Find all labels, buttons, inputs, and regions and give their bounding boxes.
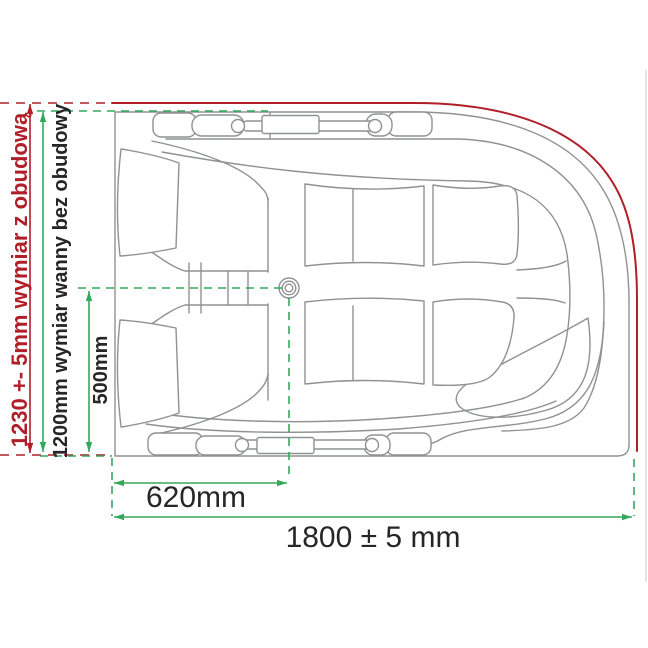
- tub-drawing: [112, 103, 637, 456]
- label-drain-offset-y: 500mm: [90, 336, 112, 405]
- bathtub-technical-drawing: 1230 +- 5mm wymiar z obudową 1200mm wymi…: [0, 0, 648, 648]
- headrest-top: [117, 149, 179, 256]
- label-tub-height: 1200mm wymiar wanny bez obudowy: [50, 103, 72, 458]
- label-total-length: 1800 ± 5 mm: [286, 521, 461, 554]
- tub-outer-casing: [115, 112, 629, 456]
- floor-panel-top-right: [433, 185, 519, 265]
- label-drain-offset-x: 620mm: [146, 481, 246, 514]
- floor-panel-top-left: [305, 184, 424, 266]
- floor-panel-bottom-left: [305, 298, 424, 384]
- label-outer-height: 1230 +- 5mm wymiar z obudową: [7, 112, 32, 447]
- headrest-bottom: [117, 320, 179, 427]
- diagram-canvas: 1230 +- 5mm wymiar z obudową 1200mm wymi…: [0, 0, 648, 648]
- grab-handle-top: [153, 112, 432, 137]
